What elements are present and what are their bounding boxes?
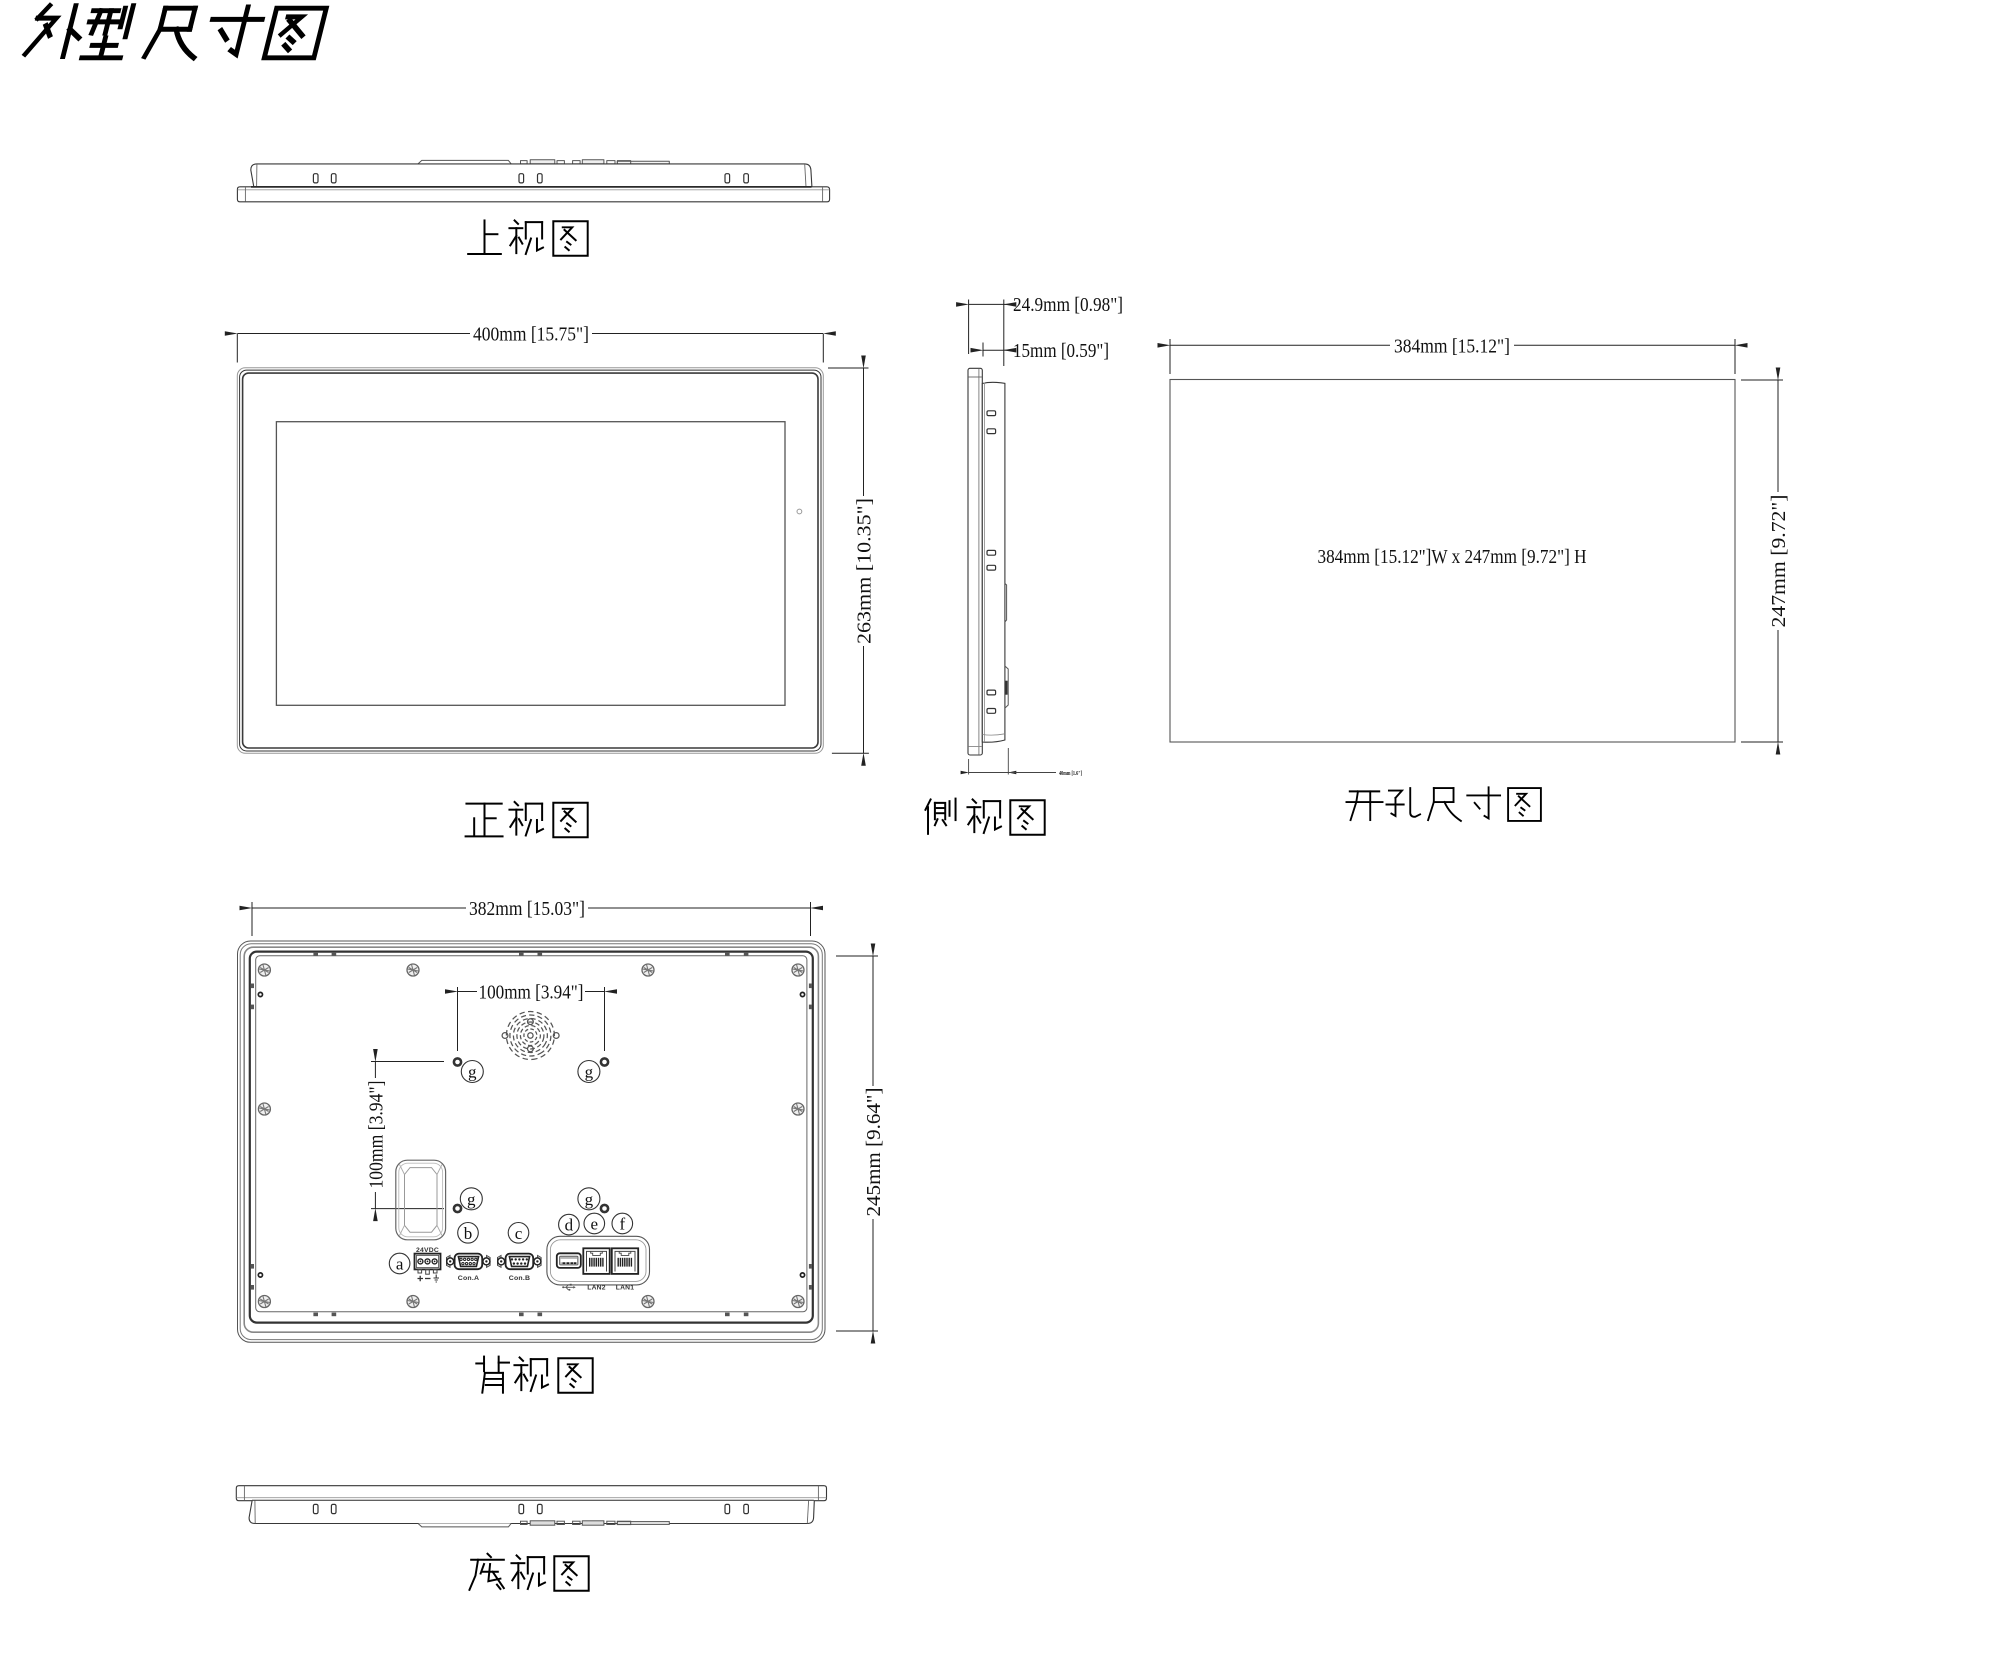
svg-text:384mm [15.12"]: 384mm [15.12"]	[1394, 335, 1510, 357]
svg-text:f: f	[619, 1215, 625, 1234]
svg-text:100mm [3.94"]: 100mm [3.94"]	[365, 1081, 387, 1189]
svg-text:b: b	[464, 1224, 473, 1243]
svg-text:100mm [3.94"]: 100mm [3.94"]	[479, 982, 584, 1004]
svg-text:d: d	[565, 1216, 574, 1235]
svg-text:LAN1: LAN1	[616, 1285, 635, 1292]
svg-text:400mm [15.75"]: 400mm [15.75"]	[473, 324, 589, 346]
svg-text:g: g	[467, 1190, 476, 1209]
svg-text:15mm [0.59"]: 15mm [0.59"]	[1013, 340, 1109, 362]
svg-text:24.9mm [0.98"]: 24.9mm [0.98"]	[1013, 294, 1123, 316]
svg-text:384mm [15.12"]W x 247mm [9.72": 384mm [15.12"]W x 247mm [9.72"] H	[1318, 546, 1587, 568]
svg-text:382mm [15.03"]: 382mm [15.03"]	[469, 898, 585, 920]
svg-text:LAN2: LAN2	[587, 1285, 606, 1292]
svg-text:Con.B: Con.B	[509, 1275, 531, 1282]
svg-text:e: e	[591, 1215, 599, 1234]
svg-text:247mm [9.72"]: 247mm [9.72"]	[1768, 495, 1790, 628]
svg-text:Con.A: Con.A	[458, 1275, 480, 1282]
svg-text:c: c	[515, 1224, 523, 1243]
svg-text:40mm [1.6"]: 40mm [1.6"]	[1059, 770, 1082, 777]
svg-text:245mm [9.64"]: 245mm [9.64"]	[863, 1088, 885, 1217]
svg-text:a: a	[396, 1255, 404, 1274]
svg-text:g: g	[468, 1063, 477, 1082]
svg-text:g: g	[585, 1190, 594, 1209]
svg-text:263mm [10.35"]: 263mm [10.35"]	[854, 498, 876, 644]
svg-text:g: g	[585, 1063, 594, 1082]
